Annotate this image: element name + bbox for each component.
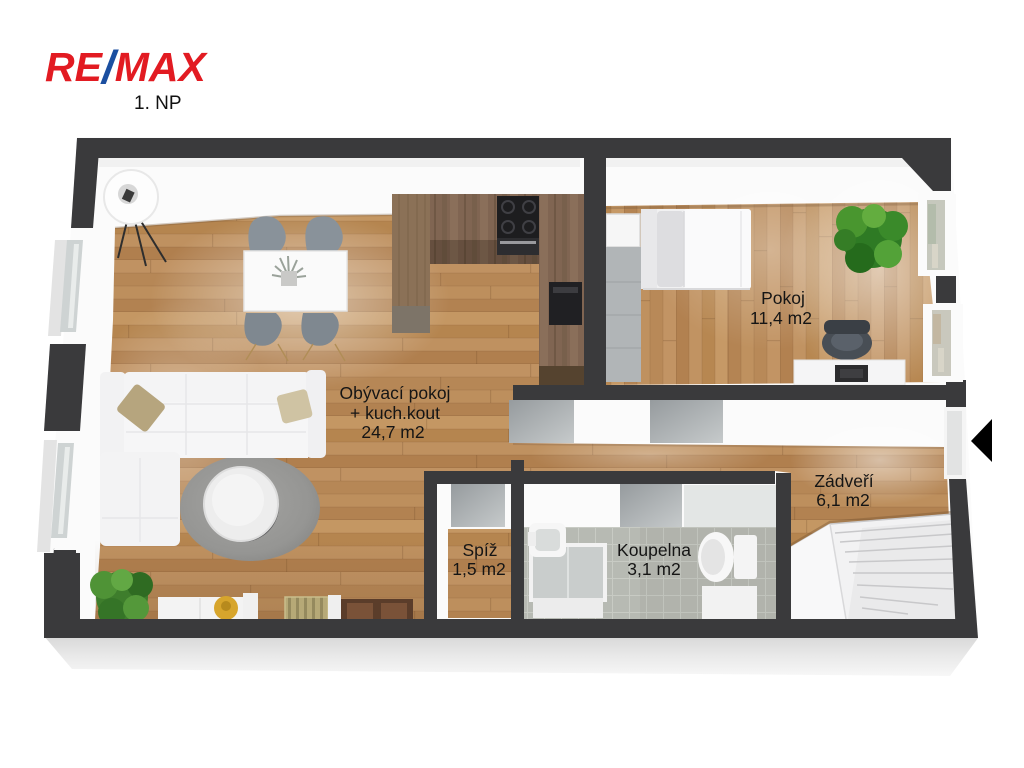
svg-text:Spíž: Spíž — [462, 540, 497, 560]
svg-text:11,4 m2: 11,4 m2 — [750, 308, 812, 328]
svg-text:6,1 m2: 6,1 m2 — [816, 490, 870, 510]
svg-text:Pokoj: Pokoj — [761, 288, 805, 308]
svg-text:1,5 m2: 1,5 m2 — [452, 559, 506, 579]
svg-text:+ kuch.kout: + kuch.kout — [350, 403, 440, 423]
svg-text:24,7 m2: 24,7 m2 — [361, 422, 424, 442]
svg-text:Zádveří: Zádveří — [814, 471, 873, 491]
svg-text:Obývací pokoj: Obývací pokoj — [340, 383, 451, 403]
svg-text:3,1 m2: 3,1 m2 — [627, 559, 681, 579]
svg-text:Koupelna: Koupelna — [617, 540, 691, 560]
